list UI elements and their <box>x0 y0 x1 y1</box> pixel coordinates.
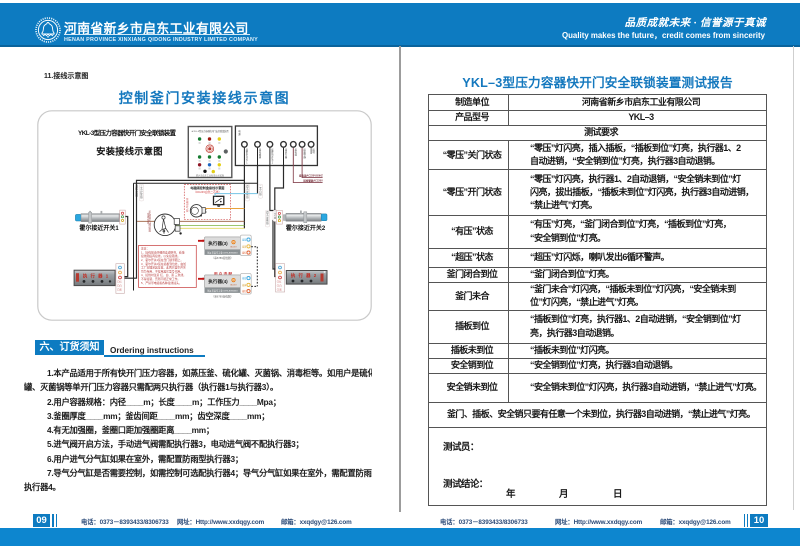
svg-text:〇白: 〇白 <box>277 284 282 288</box>
svg-text:BUCST: BUCST <box>230 247 237 249</box>
svg-text:5、严禁带电插拔各种接线插头。: 5、严禁带电插拔各种接线插头。 <box>141 281 182 285</box>
svg-text:〇白: 〇白 <box>117 284 122 288</box>
svg-text:执行器(4): 执行器(4) <box>208 278 228 285</box>
svg-text:接报警器AC220V: 接报警器AC220V <box>302 179 323 183</box>
svg-text:霍尔接近开关2: 霍尔接近开关2 <box>286 224 326 232</box>
svg-text:（串6789接线图）: （串6789接线图） <box>212 256 233 260</box>
svg-text:执 行 器 2: 执 行 器 2 <box>291 272 317 279</box>
svg-text:执行器(3): 执行器(3) <box>208 240 228 247</box>
svg-text:〇红: 〇红 <box>277 280 282 284</box>
svg-text:〇红: 〇红 <box>117 280 122 284</box>
svg-text:BUCST: BUCST <box>230 285 237 287</box>
svg-text:安装接线示意图: 安装接线示意图 <box>96 146 162 157</box>
svg-text:执 行 器 1: 执 行 器 1 <box>83 272 109 279</box>
svg-text:霍尔接近开关1: 霍尔接近开关1 <box>79 224 119 232</box>
svg-text:〇黑: 〇黑 <box>117 288 122 292</box>
svg-text:〇黑: 〇黑 <box>277 288 282 292</box>
svg-text:手动进气阀装置: 手动进气阀装置 <box>148 210 151 233</box>
svg-text:电磁阀控制盒接线示意图: 电磁阀控制盒接线示意图 <box>190 185 224 190</box>
svg-text:（串6789接线图）: （串6789接线图） <box>212 294 233 298</box>
svg-text:YKL-3型压力容器快开门安全联锁装置: YKL-3型压力容器快开门安全联锁装置 <box>78 128 177 137</box>
svg-text:接电源AC220V/50HZ: 接电源AC220V/50HZ <box>298 174 323 178</box>
